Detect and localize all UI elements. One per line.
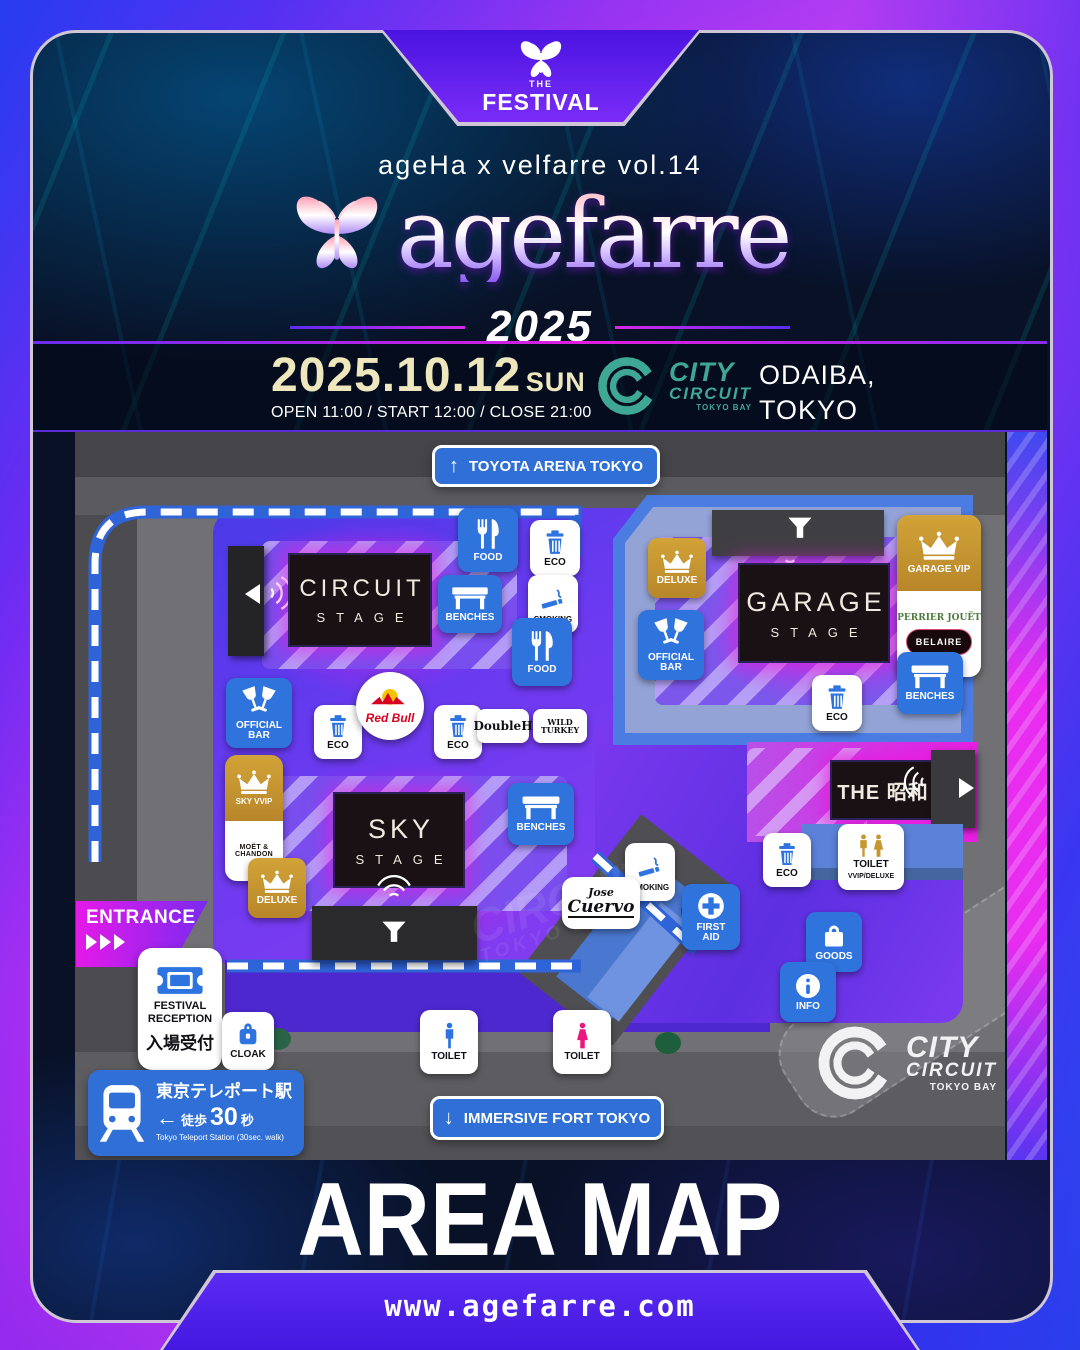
red-bull-badge: Red Bull — [356, 672, 424, 740]
woman-icon — [872, 834, 885, 858]
wild-turkey-badge: WILD TURKEY — [533, 709, 587, 743]
area-map: GARAGE STAGE CIRCUIT STAGE SKY STAGE THE… — [75, 432, 1005, 1160]
city-circuit-logo-ground: CITY CIRCUIT TOKYO BAY — [812, 1020, 997, 1106]
deluxe-badge: DELUXE — [648, 538, 706, 598]
moet-chandon-logo: MOËT & CHANDON — [227, 844, 281, 858]
butterfly-icon — [291, 188, 383, 280]
crown-icon — [661, 550, 693, 574]
suitcase-icon — [235, 1022, 261, 1048]
jose-cuervo-badge: Jose Cuervo — [562, 877, 640, 929]
event-subtitle: ageHa x velfarre vol.14 — [0, 150, 1080, 181]
benches-badge: BENCHES — [438, 575, 502, 633]
first-aid-badge: FIRST AID — [682, 884, 740, 950]
sound-waves-icon — [903, 760, 927, 804]
man-icon — [442, 1022, 457, 1050]
bar-glasses-icon — [241, 685, 277, 719]
info-badge: INFO — [780, 962, 836, 1022]
brand-the: THE — [529, 79, 553, 89]
circuit-stage-label: CIRCUIT — [295, 575, 424, 603]
immersive-fort-label: IMMERSIVE FORT TOKYO — [464, 1110, 650, 1127]
speaker-horn-icon — [787, 516, 813, 541]
butterfly-icon — [518, 37, 564, 83]
first-aid-icon — [696, 891, 726, 921]
perrier-jouet-logo: PERRIER JOUËT — [897, 613, 981, 623]
speaker-cone-icon — [959, 778, 974, 798]
event-times: OPEN 11:00 / START 12:00 / CLOSE 21:00 — [271, 404, 592, 422]
deluxe-badge: DELUXE — [248, 858, 306, 918]
wild-turkey-logo: WILD TURKEY — [533, 718, 587, 735]
trash-icon — [325, 713, 351, 739]
date-bar: 2025.10.12 SUN OPEN 11:00 / START 12:00 … — [33, 344, 1047, 430]
trash-icon — [774, 841, 800, 867]
jose-cuervo-logo2: Cuervo — [568, 899, 635, 918]
eco-badge: ECO — [763, 833, 811, 887]
immersive-fort-banner: ↓ IMMERSIVE FORT TOKYO — [430, 1096, 664, 1140]
toyota-arena-label: TOYOTA ARENA TOKYO — [469, 458, 643, 475]
up-arrow-icon: ↑ — [449, 455, 459, 478]
event-title: agefarre — [397, 186, 790, 282]
garage-stage: GARAGE STAGE — [738, 563, 890, 663]
city-circuit-spokes-icon — [593, 352, 661, 420]
left-arrow-icon: ← — [156, 1106, 178, 1130]
crown-icon — [237, 770, 271, 795]
bench-icon — [521, 794, 561, 821]
bench-icon — [910, 663, 950, 690]
double-h-logo: DoubleH — [473, 720, 532, 733]
station-name-jp: 東京テレポート駅 — [156, 1083, 292, 1102]
station-box: 東京テレポート駅 ← 徒歩 30 秒 Tokyo Teleport Statio… — [88, 1070, 304, 1156]
info-icon — [794, 972, 822, 1000]
cc-city: CITY — [669, 360, 752, 386]
event-date: 2025.10.12 — [271, 349, 521, 402]
smoking-icon — [635, 852, 665, 882]
reception-jp: 入場受付 — [146, 1029, 214, 1054]
side-art-strip — [1007, 432, 1047, 1160]
eco-badge: ECO — [314, 705, 362, 759]
trash-icon — [541, 528, 569, 556]
ticket-icon — [156, 964, 204, 997]
smoking-icon — [538, 584, 568, 614]
cloak-badge: CLOAK — [222, 1012, 274, 1070]
food-badge: FOOD — [458, 508, 518, 572]
benches-badge: BENCHES — [508, 783, 574, 845]
circuit-stage-sub: STAGE — [305, 610, 414, 625]
trash-icon — [823, 683, 851, 711]
double-h-badge: DoubleH — [477, 709, 529, 743]
red-bull-label: Red Bull — [366, 711, 415, 725]
train-icon — [96, 1083, 148, 1143]
eco-badge: ECO — [530, 520, 580, 576]
year-line-left — [290, 326, 465, 329]
crown-icon — [918, 531, 960, 561]
jose-cuervo-logo: Jose — [588, 888, 614, 898]
location: ODAIBA, TOKYO — [759, 358, 876, 428]
city-circuit-logo-header: CITY CIRCUIT TOKYO BAY — [593, 352, 752, 420]
food-icon — [525, 629, 559, 663]
man-icon — [857, 834, 870, 858]
woman-icon — [575, 1022, 590, 1050]
festival-reception-badge: FESTIVAL RECEPTION 入場受付 — [138, 948, 222, 1070]
location-line2: TOKYO — [759, 393, 876, 428]
bar-glasses-icon — [653, 617, 689, 651]
toilet-women-badge: TOILET — [553, 1010, 611, 1074]
reception-line1: FESTIVAL — [148, 1000, 212, 1013]
sky-stage-label: SKY — [364, 814, 434, 845]
down-arrow-icon: ↓ — [444, 1107, 454, 1130]
crown-icon — [261, 870, 293, 894]
food-badge: FOOD — [512, 618, 572, 686]
shopping-bag-icon — [820, 922, 848, 950]
toilet-men-badge: TOILET — [420, 1010, 478, 1074]
sky-stage-sub: STAGE — [344, 852, 453, 867]
sound-waves-icon — [371, 874, 417, 900]
eco-badge: ECO — [812, 675, 862, 731]
greenery — [655, 1032, 681, 1054]
reception-line2: RECEPTION — [148, 1013, 212, 1026]
year-line-right — [615, 326, 790, 329]
official-bar-badge: OFFICIAL BAR — [226, 678, 292, 748]
speaker-horn-icon — [381, 920, 407, 945]
location-line1: ODAIBA, — [759, 358, 876, 393]
garage-stage-sub: STAGE — [759, 625, 868, 640]
city-circuit-spokes-icon — [812, 1020, 898, 1106]
circuit-stage: CIRCUIT STAGE — [288, 553, 432, 647]
poster: ageHa x velfarre vol.14 agefarre 2025 20… — [0, 0, 1080, 1350]
official-bar-badge: OFFICIAL BAR — [638, 610, 704, 680]
station-name-en: Tokyo Teleport Station (30sec. walk) — [156, 1134, 292, 1143]
bench-icon — [451, 585, 489, 611]
garage-stage-label: GARAGE — [742, 587, 886, 618]
date-block: 2025.10.12 SUN OPEN 11:00 / START 12:00 … — [271, 352, 592, 422]
cc-circuit: CIRCUIT — [669, 386, 752, 402]
footer-tab: www.agefarre.com — [160, 1270, 920, 1350]
entrance-label: ENTRANCE — [86, 907, 208, 929]
speaker-cone-icon — [245, 584, 260, 604]
event-day: SUN — [526, 367, 586, 397]
website-url: www.agefarre.com — [384, 1289, 695, 1350]
event-logo: agefarre — [0, 186, 1080, 282]
red-bull-icon — [369, 687, 411, 711]
toyota-arena-banner: ↑ TOYOTA ARENA TOKYO — [432, 445, 660, 487]
benches-badge: BENCHES — [897, 652, 963, 714]
trash-icon — [445, 713, 471, 739]
food-icon — [471, 517, 505, 551]
page-title: AREA MAP — [65, 1168, 1015, 1272]
cc-bay: TOKYO BAY — [696, 404, 752, 412]
toilet-vvip-badge: TOILET VVIP/DELUXE — [838, 824, 904, 890]
brand-festival: FESTIVAL — [482, 89, 599, 116]
